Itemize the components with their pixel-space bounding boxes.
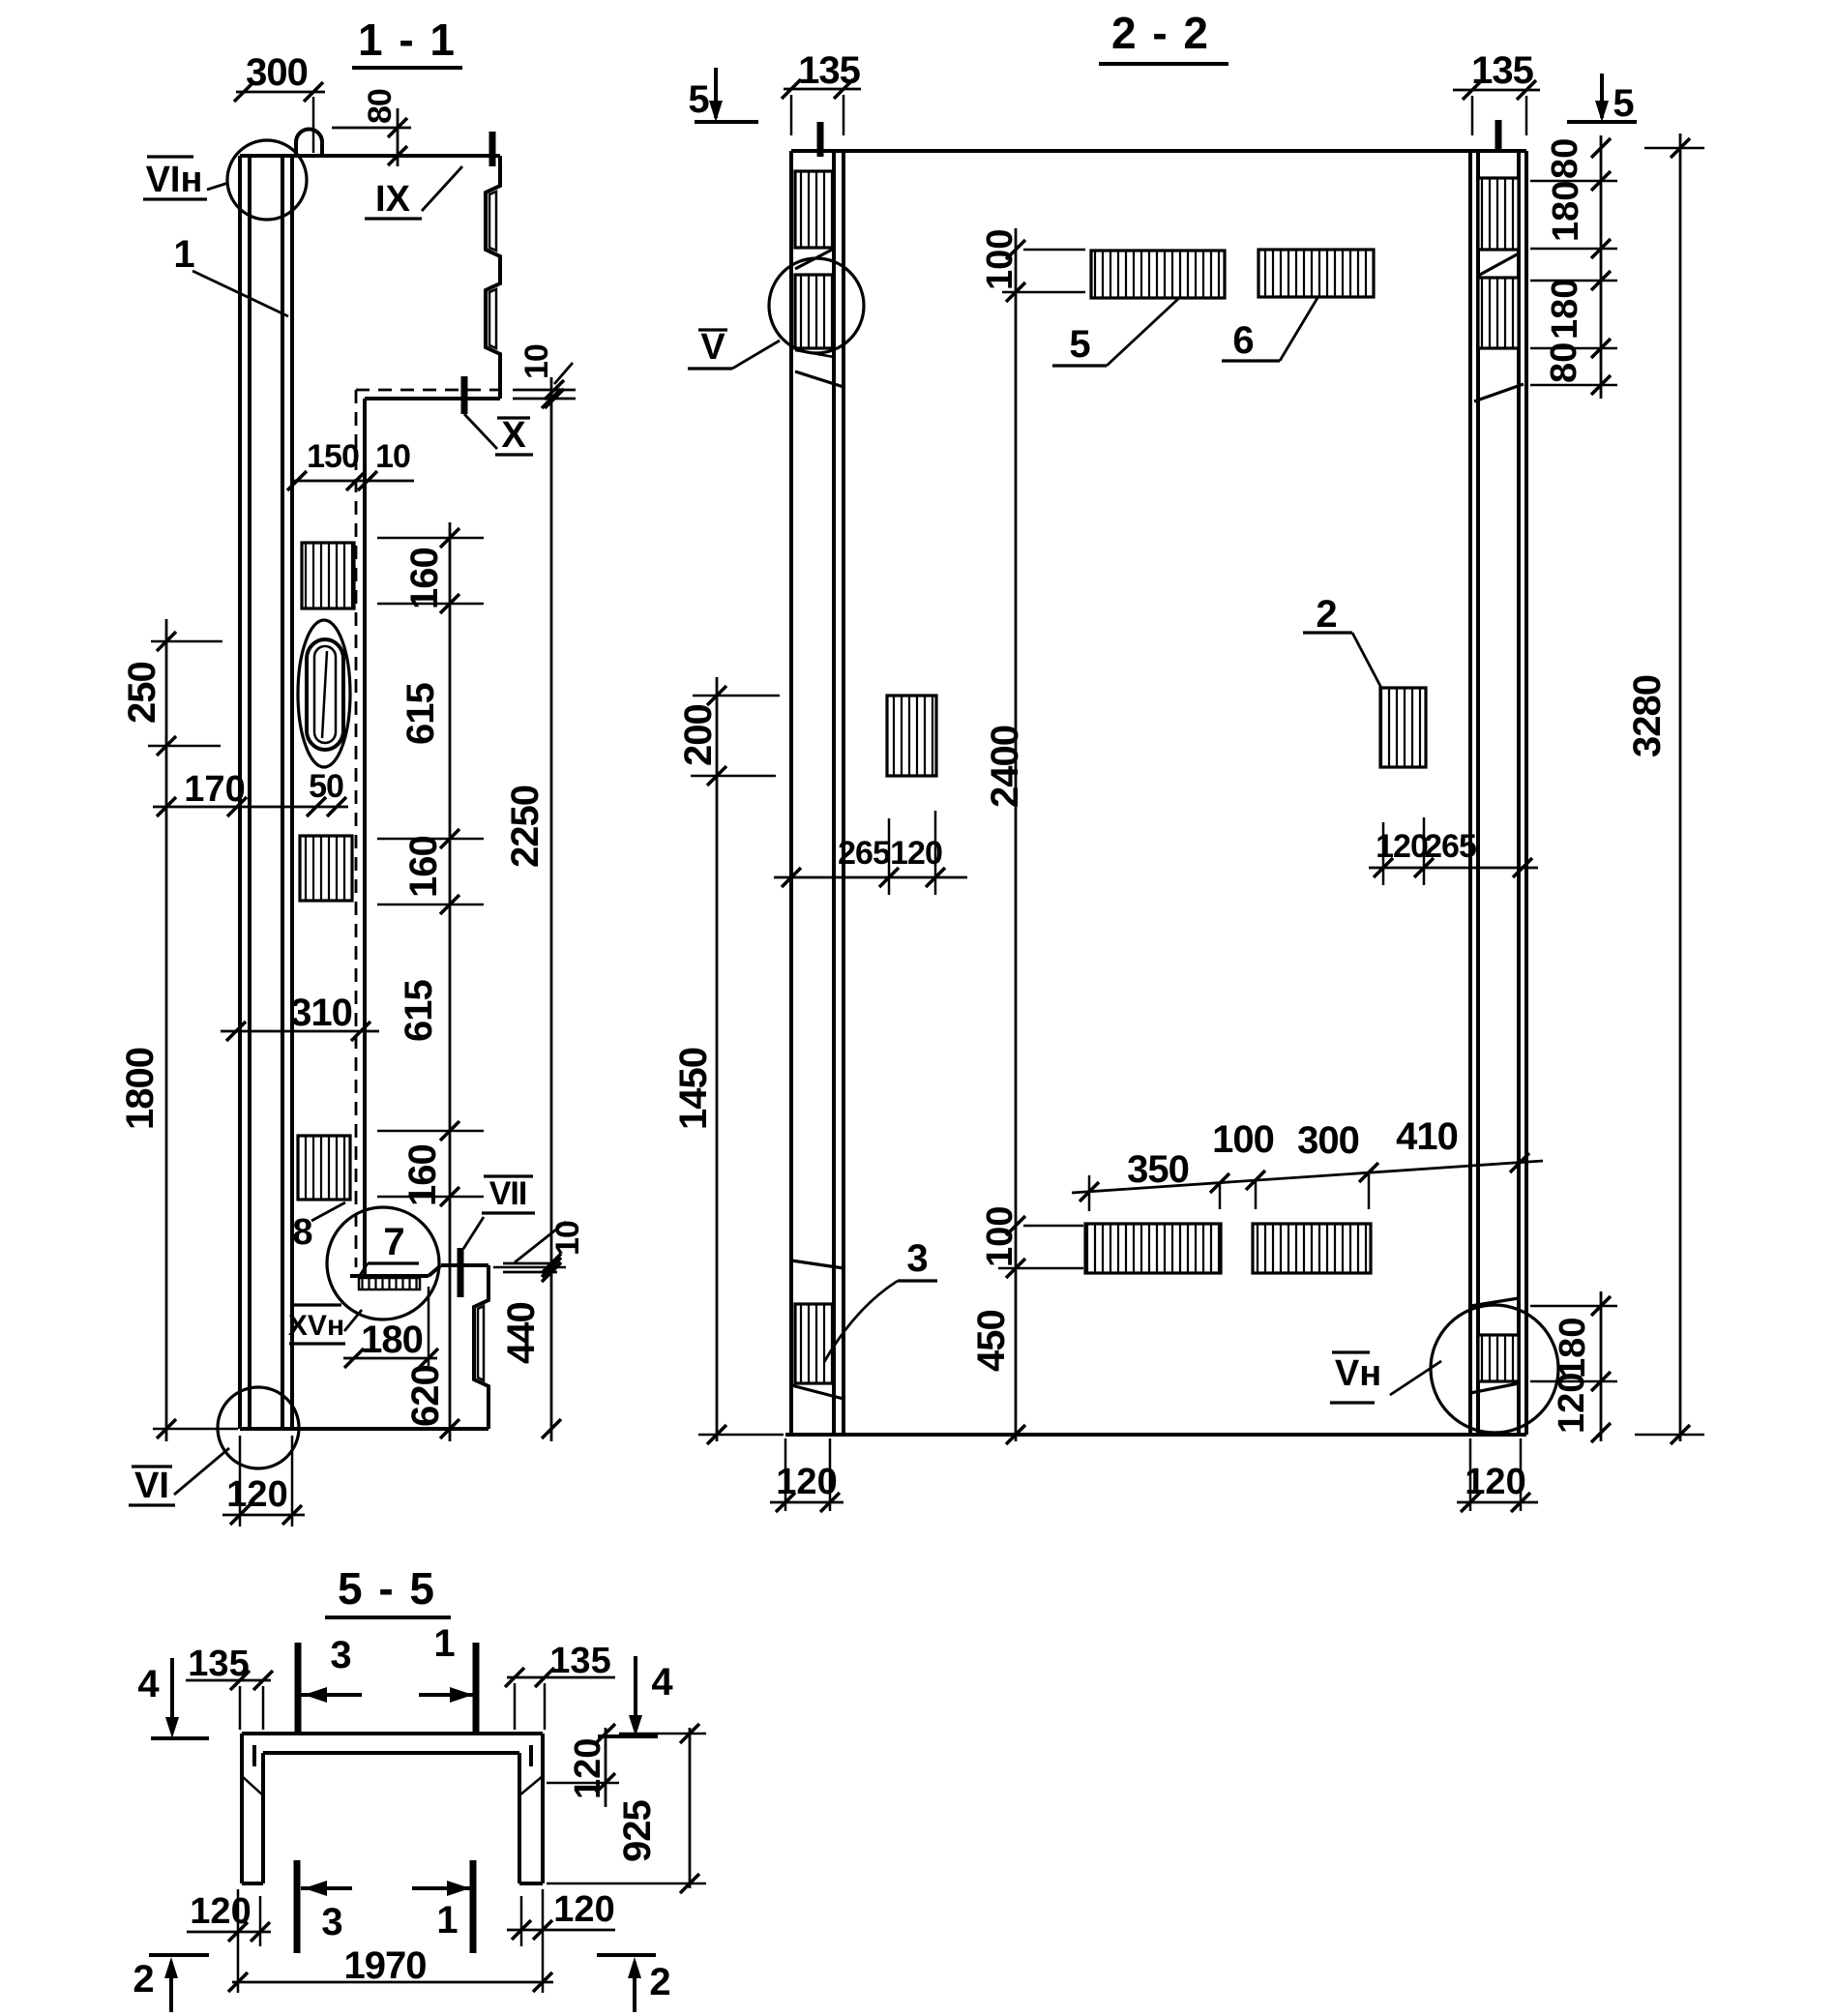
svg-text:7: 7 (383, 1221, 403, 1263)
svg-text:10: 10 (375, 438, 410, 475)
svg-text:300: 300 (246, 51, 308, 94)
svg-text:1: 1 (173, 233, 194, 276)
svg-text:4: 4 (651, 1661, 673, 1704)
svg-text:3: 3 (321, 1901, 341, 1943)
svg-text:1: 1 (433, 1622, 455, 1665)
svg-text:160: 160 (402, 836, 445, 898)
svg-text:2: 2 (133, 1958, 153, 2001)
svg-text:925: 925 (616, 1800, 659, 1862)
svg-text:1800: 1800 (119, 1048, 162, 1130)
svg-text:350: 350 (1127, 1148, 1189, 1191)
svg-text:160: 160 (401, 1144, 444, 1206)
svg-text:250: 250 (121, 662, 163, 724)
svg-text:IX: IX (375, 179, 411, 220)
svg-text:3280: 3280 (1626, 675, 1669, 757)
svg-text:135: 135 (1471, 49, 1533, 92)
svg-text:2250: 2250 (504, 786, 547, 868)
svg-text:3: 3 (906, 1237, 927, 1280)
svg-text:160: 160 (403, 548, 446, 609)
svg-text:2: 2 (649, 1961, 669, 2003)
svg-text:XVн: XVн (288, 1310, 344, 1342)
svg-text:5: 5 (1069, 323, 1090, 366)
svg-text:1450: 1450 (672, 1048, 715, 1130)
svg-text:3: 3 (330, 1634, 350, 1676)
svg-text:620: 620 (404, 1365, 447, 1427)
svg-text:80: 80 (362, 89, 399, 124)
svg-text:120: 120 (226, 1474, 287, 1515)
svg-text:10: 10 (549, 1221, 586, 1256)
svg-text:120: 120 (1376, 828, 1428, 865)
svg-text:VIн: VIн (146, 160, 203, 200)
svg-text:615: 615 (400, 683, 442, 745)
svg-text:170: 170 (184, 769, 245, 810)
svg-text:5: 5 (688, 78, 709, 121)
svg-text:200: 200 (677, 704, 720, 766)
svg-text:10: 10 (518, 344, 555, 379)
svg-text:135: 135 (798, 49, 860, 92)
svg-text:6: 6 (1232, 319, 1253, 362)
svg-text:135: 135 (549, 1641, 610, 1681)
svg-text:8: 8 (292, 1212, 312, 1253)
svg-text:2: 2 (1316, 593, 1336, 636)
svg-text:120: 120 (568, 1738, 608, 1799)
svg-text:100: 100 (980, 229, 1021, 290)
svg-text:2400: 2400 (984, 726, 1026, 808)
svg-text:180: 180 (361, 1319, 423, 1361)
svg-text:1: 1 (436, 1899, 458, 1942)
svg-text:265: 265 (838, 835, 890, 872)
svg-text:265: 265 (1424, 828, 1476, 865)
svg-text:120: 120 (1465, 1462, 1525, 1502)
svg-text:615: 615 (398, 980, 440, 1042)
svg-text:100: 100 (1212, 1118, 1274, 1161)
svg-text:450: 450 (970, 1310, 1013, 1372)
svg-text:1970: 1970 (344, 1944, 427, 1987)
svg-text:Vн: Vн (1335, 1353, 1381, 1394)
svg-text:100: 100 (980, 1206, 1021, 1267)
svg-text:410: 410 (1396, 1115, 1458, 1158)
svg-text:80: 80 (1545, 138, 1585, 179)
svg-text:5: 5 (1613, 82, 1634, 125)
svg-text:V: V (700, 327, 725, 368)
svg-text:150: 150 (307, 438, 359, 475)
svg-text:2 - 2: 2 - 2 (1111, 8, 1210, 58)
svg-text:VI: VI (134, 1466, 169, 1506)
svg-text:4: 4 (137, 1663, 160, 1705)
svg-text:1 - 1: 1 - 1 (358, 15, 457, 65)
svg-text:VII: VII (489, 1175, 527, 1212)
svg-text:X: X (501, 415, 526, 456)
svg-text:440: 440 (500, 1302, 543, 1364)
svg-text:120: 120 (890, 835, 942, 872)
svg-text:180: 180 (1546, 181, 1586, 242)
svg-text:120: 120 (553, 1889, 614, 1930)
svg-text:5 - 5: 5 - 5 (338, 1563, 436, 1614)
svg-text:300: 300 (1297, 1119, 1359, 1162)
svg-text:50: 50 (309, 768, 343, 805)
svg-text:310: 310 (290, 992, 352, 1034)
svg-text:180: 180 (1545, 279, 1585, 340)
svg-text:80: 80 (1544, 342, 1584, 383)
